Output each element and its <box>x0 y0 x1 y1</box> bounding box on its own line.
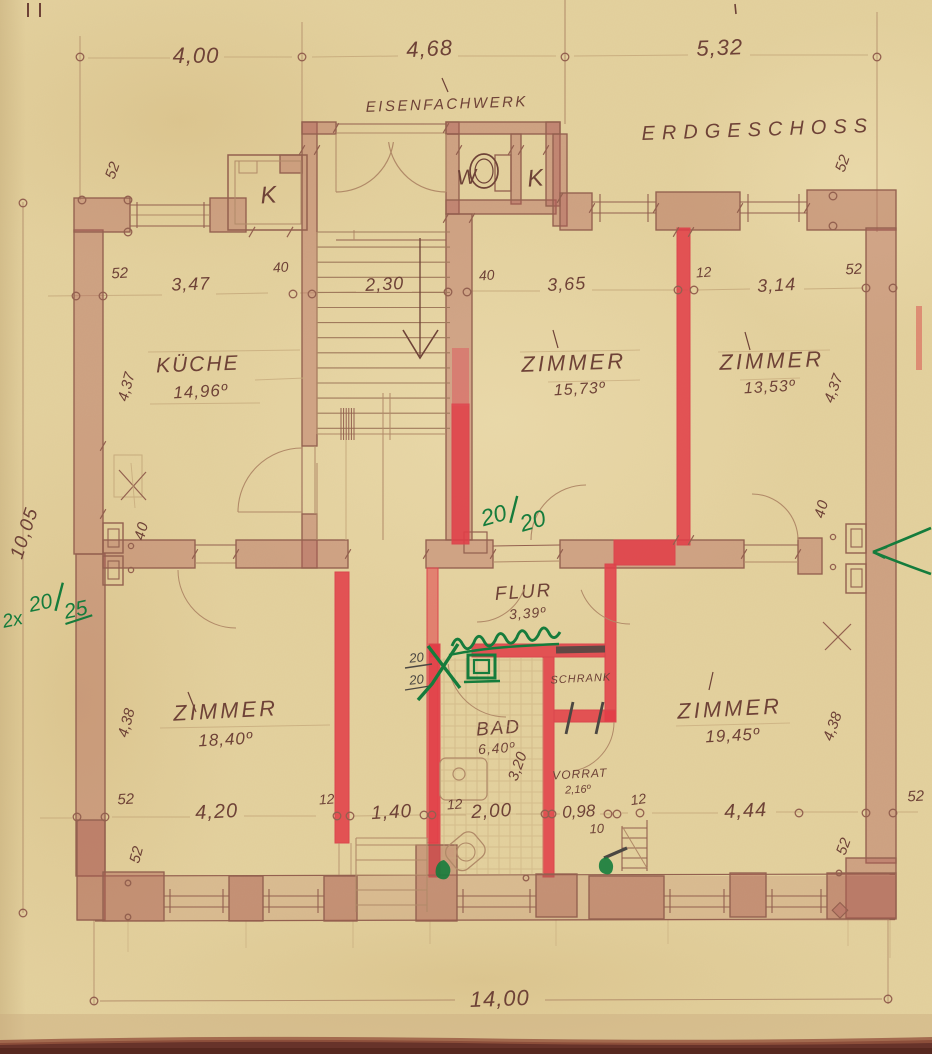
svg-text:4,20: 4,20 <box>195 800 239 824</box>
svg-text:VORRAT: VORRAT <box>552 766 608 783</box>
svg-text:14,00: 14,00 <box>469 985 530 1012</box>
svg-text:52: 52 <box>907 788 925 806</box>
svg-text:2,16º: 2,16º <box>564 783 592 796</box>
svg-text:K: K <box>260 181 279 209</box>
svg-text:FLUR: FLUR <box>494 580 553 605</box>
svg-text:12: 12 <box>695 263 712 280</box>
svg-text:3,47: 3,47 <box>171 273 211 294</box>
svg-text:ZIMMER: ZIMMER <box>520 348 627 377</box>
svg-text:1,40: 1,40 <box>371 801 413 824</box>
svg-text:13,53º: 13,53º <box>743 378 796 398</box>
svg-text:10: 10 <box>589 821 605 837</box>
svg-text:18,40º: 18,40º <box>198 729 254 751</box>
svg-text:KÜCHE: KÜCHE <box>156 352 240 378</box>
svg-text:W: W <box>456 165 480 189</box>
svg-text:20: 20 <box>408 671 426 688</box>
svg-text:52: 52 <box>117 791 135 809</box>
svg-text:12: 12 <box>446 795 463 812</box>
svg-text:4,00: 4,00 <box>173 43 220 68</box>
svg-text:3,39º: 3,39º <box>508 604 546 623</box>
svg-text:2,30: 2,30 <box>364 273 405 295</box>
svg-text:5,32: 5,32 <box>696 34 744 61</box>
svg-text:14,96º: 14,96º <box>173 381 229 403</box>
svg-text:3,14: 3,14 <box>757 274 797 296</box>
svg-text:15,73º: 15,73º <box>553 380 606 400</box>
svg-text:4,68: 4,68 <box>406 35 454 62</box>
svg-text:40: 40 <box>478 266 495 283</box>
svg-text:19,45º: 19,45º <box>705 725 761 747</box>
svg-text:52: 52 <box>845 261 863 279</box>
svg-text:0,98: 0,98 <box>562 801 597 822</box>
svg-text:52: 52 <box>111 265 129 283</box>
svg-text:12: 12 <box>629 790 647 808</box>
svg-text:3,65: 3,65 <box>547 273 587 295</box>
svg-text:20: 20 <box>408 649 426 666</box>
svg-text:40: 40 <box>272 258 289 275</box>
svg-text:2,00: 2,00 <box>470 800 513 823</box>
svg-text:4,44: 4,44 <box>724 799 768 823</box>
svg-text:12: 12 <box>318 790 335 807</box>
